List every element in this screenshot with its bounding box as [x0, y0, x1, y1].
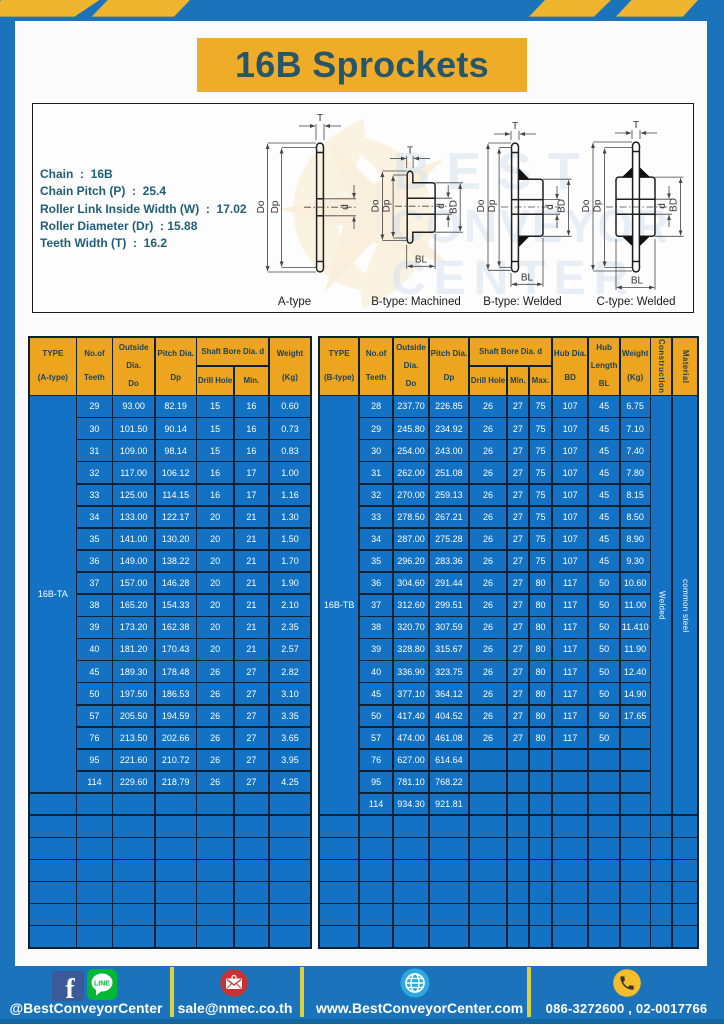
- svg-text:BD: BD: [557, 199, 568, 213]
- svg-text:d: d: [436, 203, 447, 209]
- svg-text:Do: Do: [256, 200, 267, 213]
- svg-text:BD: BD: [669, 198, 680, 212]
- svg-text:BL: BL: [521, 273, 534, 284]
- svg-text:d: d: [657, 203, 668, 209]
- svg-text:BL: BL: [415, 255, 428, 266]
- svg-text:f: f: [65, 974, 75, 1001]
- svg-text:Do: Do: [581, 199, 592, 212]
- svg-text:T: T: [407, 146, 413, 157]
- svg-text:Dp: Dp: [593, 199, 604, 212]
- svg-text:d: d: [545, 204, 556, 210]
- svg-text:B-type: Welded: B-type: Welded: [483, 296, 561, 308]
- svg-text:BL: BL: [631, 276, 644, 287]
- svg-text:Do: Do: [476, 199, 487, 212]
- svg-text:Dp: Dp: [487, 199, 498, 212]
- svg-text:Dp: Dp: [382, 199, 393, 212]
- svg-text:Dp: Dp: [270, 200, 281, 213]
- svg-text:A-type: A-type: [278, 296, 311, 308]
- svg-text:T: T: [512, 121, 518, 132]
- svg-text:T: T: [633, 120, 639, 131]
- svg-text:LINE: LINE: [94, 981, 110, 988]
- svg-text:T: T: [317, 113, 323, 124]
- svg-text:C-type: Welded: C-type: Welded: [596, 296, 675, 308]
- svg-text:BD: BD: [449, 200, 460, 214]
- svg-text:B-type: Machined: B-type: Machined: [371, 296, 461, 308]
- svg-text:d: d: [340, 204, 351, 210]
- svg-text:Do: Do: [371, 199, 382, 212]
